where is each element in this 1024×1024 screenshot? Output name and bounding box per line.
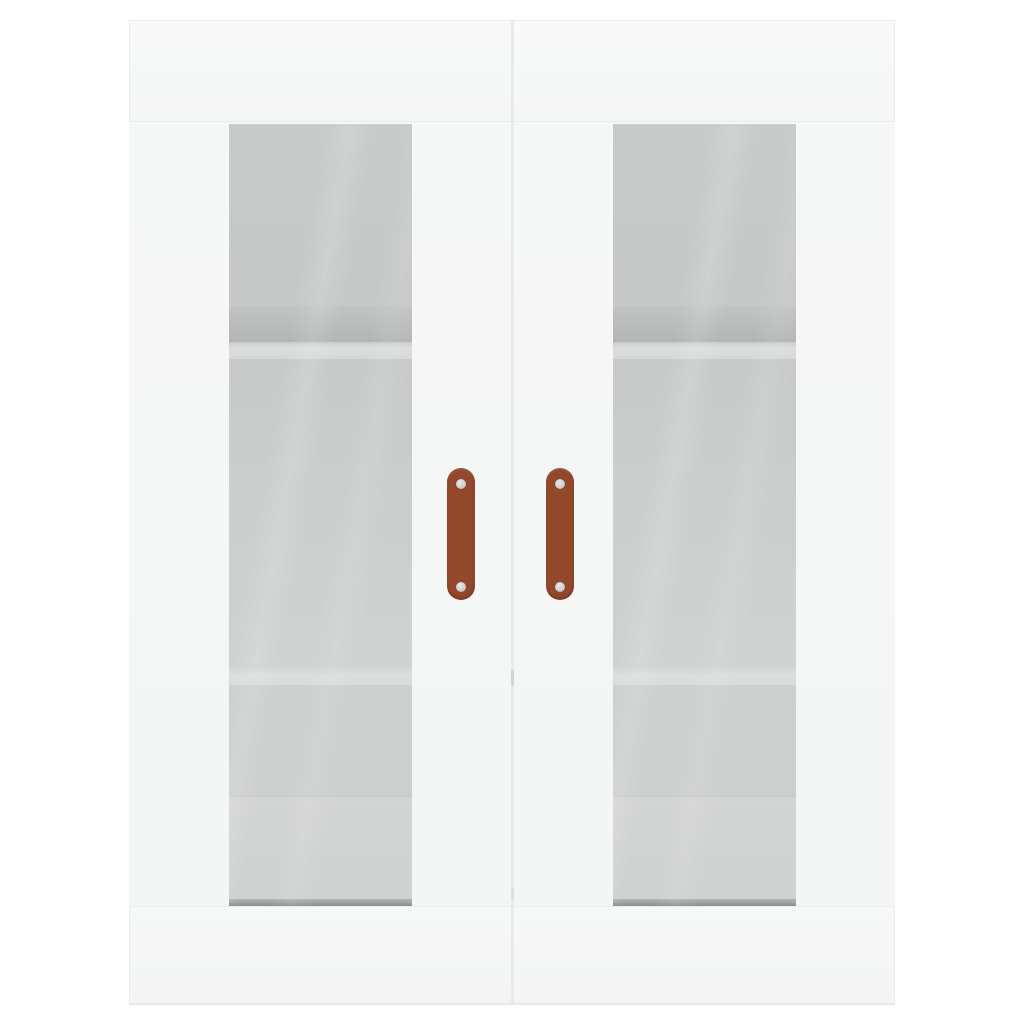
lower-compartment-back — [613, 685, 796, 796]
middle-compartment-back — [229, 359, 412, 668]
upper-shelf-front-edge — [613, 342, 796, 359]
lower-shelf-front-edge — [613, 668, 796, 685]
middle-compartment-back — [613, 359, 796, 668]
left-glass-panel — [229, 124, 412, 906]
upper-shelf-shadow — [613, 306, 796, 342]
cabinet-bottom-edge — [129, 1003, 895, 1005]
lower-compartment-back — [229, 685, 412, 796]
product-photo — [0, 0, 1024, 1024]
handle-screw — [456, 479, 466, 489]
lower-shelf-front-edge — [229, 668, 412, 685]
right-glass-panel — [613, 124, 796, 906]
upper-compartment-back — [229, 124, 412, 306]
handle-screw — [456, 582, 466, 592]
upper-shelf-shadow — [229, 306, 412, 342]
wall-cabinet-set — [129, 20, 895, 1005]
upper-compartment-back — [613, 124, 796, 306]
glass-bottom-edge — [613, 899, 796, 906]
left-cabinet-door — [129, 121, 511, 907]
left-door-handle — [447, 468, 475, 600]
upper-shelf-front-edge — [229, 342, 412, 359]
handle-screw — [555, 479, 565, 489]
right-door-handle — [546, 468, 574, 600]
handle-screw — [555, 582, 565, 592]
glass-bottom-edge — [229, 899, 412, 906]
right-cabinet-door — [514, 121, 895, 907]
bottom-compartment-back — [613, 796, 796, 899]
bottom-compartment-back — [229, 796, 412, 899]
